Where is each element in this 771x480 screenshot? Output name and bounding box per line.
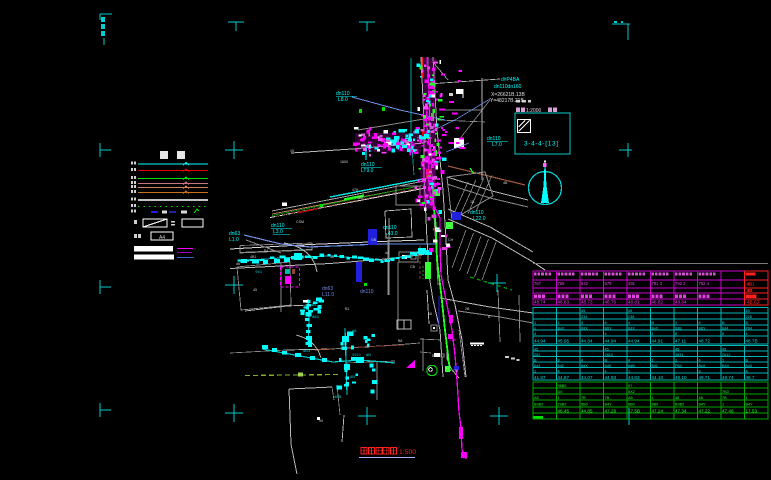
svg-text:45: 45 [253,288,257,292]
svg-text:CB: CB [410,265,416,269]
svg-text:3-4-4-[13]: 3-4-4-[13] [524,141,559,148]
svg-text:1: 1 [675,359,677,363]
svg-text:49: 49 [319,419,323,423]
svg-text:48B: 48B [334,394,341,399]
svg-text:478: 478 [449,337,456,342]
svg-text:Y=48217B.21B: Y=48217B.21B [490,98,524,104]
svg-text:d8: d8 [236,262,240,266]
svg-text:CH: CH [448,238,454,242]
svg-text:4B1: 4B1 [250,255,256,259]
svg-text:491: 491 [628,281,636,286]
svg-text:44.93: 44.93 [605,375,617,380]
svg-text:P64: P64 [746,327,753,331]
svg-text:48.62: 48.62 [747,300,760,306]
svg-text:L8.0: L8.0 [338,97,348,103]
svg-text:226: 226 [746,315,752,319]
svg-text:48.76: 48.76 [605,300,617,305]
svg-text:4: 4 [558,370,560,374]
svg-text:x: x [534,327,536,331]
svg-text:4B: 4B [747,288,753,293]
svg-text:B8: B8 [398,339,402,343]
svg-text:48.72: 48.72 [699,339,711,344]
svg-text:1: 1 [652,332,654,336]
svg-text:TE: TE [438,229,443,233]
svg-text:45: 45 [722,348,726,352]
svg-text:9?: 9? [628,384,632,388]
svg-text:4: 4 [746,370,748,374]
svg-text:d#P4BA: d#P4BA [501,77,520,83]
svg-text:48.82: 48.82 [652,300,664,305]
svg-text:L43.0: L43.0 [385,231,398,237]
svg-text:L11.0: L11.0 [322,292,334,298]
svg-text:7B: 7B [581,396,586,400]
svg-text:48.83: 48.83 [558,300,570,305]
svg-text:18: 18 [428,312,432,316]
svg-text:48.74: 48.74 [534,300,546,305]
svg-text:48.10: 48.10 [675,375,687,380]
svg-text:252: 252 [534,353,540,357]
svg-text:1: 1 [675,321,677,325]
svg-text:4: 4 [746,332,748,336]
svg-text:4B: 4B [350,374,355,379]
svg-text:765: 765 [558,281,566,286]
svg-text:A5: A5 [628,396,633,400]
svg-text:d4: d4 [385,251,389,255]
svg-text:4: 4 [534,332,536,336]
svg-text:A5: A5 [534,396,539,400]
svg-text:842: 842 [581,281,589,286]
svg-text:478: 478 [452,369,458,373]
svg-text:B1: B1 [345,307,349,311]
svg-text:D0: D0 [558,390,563,394]
svg-text:d6: d6 [352,328,357,333]
svg-text:4: 4 [581,321,583,325]
svg-text:45: 45 [534,348,538,352]
svg-text:792 2: 792 2 [675,281,686,286]
svg-text:LT9.0: LT9.0 [361,168,374,174]
svg-text:6dX: 6dX [628,327,635,331]
svg-text:2810: 2810 [605,353,613,357]
svg-text:B9B2: B9B2 [675,403,684,407]
svg-text:44.85: 44.85 [581,409,593,414]
svg-text:767: 767 [534,281,542,286]
svg-text:762 4: 762 4 [699,281,710,286]
svg-text:6d4: 6d4 [722,327,728,331]
svg-text:Φ110: Φ110 [352,353,361,357]
svg-text:17.5B: 17.5B [628,409,640,414]
svg-text:d63: d63 [312,314,319,319]
svg-text:A4: A4 [159,235,165,241]
svg-text:38: 38 [330,255,334,259]
svg-text:B4Y: B4Y [699,403,707,407]
svg-text:4: 4 [699,359,701,363]
svg-text:4B: 4B [503,181,508,185]
svg-text:44.87: 44.87 [558,375,570,380]
svg-text:47.22: 47.22 [699,409,711,414]
svg-text:1B: 1B [470,200,475,204]
svg-text:dB: dB [366,352,371,357]
svg-text:P64: P64 [675,364,682,368]
svg-text:B6Y: B6Y [605,327,613,331]
svg-text:L7.0: L7.0 [492,142,502,148]
svg-text:488: 488 [357,196,363,200]
svg-text:44.10: 44.10 [652,375,664,380]
svg-text:B4Y: B4Y [746,403,754,407]
svg-text:47.11: 47.11 [675,339,687,344]
svg-text:8: 8 [699,370,701,374]
svg-text:B4Y: B4Y [605,403,613,407]
svg-text:45: 45 [581,309,585,313]
svg-text:4: 4 [628,321,630,325]
svg-text:1:500: 1:500 [399,449,416,456]
svg-text:1: 1 [558,396,560,400]
svg-text:45: 45 [675,348,679,352]
svg-text:46.45: 46.45 [558,409,570,414]
svg-text:17.53: 17.53 [746,409,758,414]
svg-text:6dB: 6dB [675,327,682,331]
svg-text:Φ63: Φ63 [255,270,262,274]
svg-text:6d2: 6d2 [558,364,564,368]
svg-text:238: 238 [628,315,634,319]
svg-text:6d2: 6d2 [652,364,658,368]
svg-text:7B: 7B [605,396,610,400]
svg-text:dn110: dn110 [360,289,374,295]
svg-text:3831: 3831 [675,353,683,357]
svg-text:44.94: 44.94 [605,339,617,344]
svg-text:1: 1 [746,396,748,400]
svg-text:dn110dn160: dn110dn160 [494,84,522,90]
svg-text:45: 45 [628,309,632,313]
svg-text:L1.0: L1.0 [229,237,239,243]
svg-text:1: 1 [534,321,536,325]
svg-text:4: 4 [605,332,607,336]
svg-text:791 3: 791 3 [652,281,663,286]
svg-text:4B: 4B [365,345,370,349]
svg-text:2L1: 2L1 [747,282,755,287]
svg-text:48.71: 48.71 [699,375,711,380]
svg-text:8: 8 [722,332,724,336]
svg-text:BvX: BvX [699,364,706,368]
svg-text:Φ: Φ [300,248,303,252]
svg-text:41.87: 41.87 [534,375,546,380]
svg-text:1600: 1600 [340,160,348,164]
svg-text:8B0: 8B0 [628,403,635,407]
svg-text:45.95: 45.95 [558,339,570,344]
svg-text:1: 1 [534,370,536,374]
svg-text:8: 8 [675,332,677,336]
svg-text:48.84: 48.84 [675,300,687,305]
svg-text:8B0: 8B0 [581,403,588,407]
svg-text:47.24: 47.24 [652,409,664,414]
svg-text:1: 1 [652,359,654,363]
svg-text:44.83: 44.83 [628,375,640,380]
svg-text:4: 4 [581,359,583,363]
svg-text:BvX: BvX [558,327,565,331]
svg-text:8: 8 [605,321,607,325]
svg-text:4: 4 [605,370,607,374]
svg-text:6dX: 6dX [746,364,753,368]
svg-text:47.34: 47.34 [675,409,687,414]
svg-text:15: 15 [290,149,294,153]
svg-text:679: 679 [605,281,613,286]
svg-text:44.94: 44.94 [628,339,640,344]
svg-text:48.73: 48.73 [581,300,593,305]
svg-text:1: 1 [722,403,724,407]
svg-text:8: 8 [699,321,701,325]
svg-text:dB3: dB3 [303,348,311,353]
svg-text:44.94: 44.94 [534,339,546,344]
svg-text:1: 1 [628,370,630,374]
svg-text:47.28: 47.28 [605,409,617,414]
svg-text:44.84: 44.84 [581,339,593,344]
svg-text:48.81: 48.81 [628,300,640,305]
svg-text:GB: GB [371,238,377,242]
svg-text:L22.0: L22.0 [473,216,486,222]
svg-text:48: 48 [699,396,703,400]
svg-text:45: 45 [746,309,750,313]
svg-text:8B0: 8B0 [652,403,659,407]
svg-text:44.07: 44.07 [581,375,593,380]
svg-text:6dB: 6dB [628,364,635,368]
svg-text:45: 45 [605,348,609,352]
svg-text:6dX: 6dX [605,364,612,368]
svg-text:2B: 2B [465,307,470,311]
svg-text:48.7: 48.7 [746,375,755,380]
svg-text:48.74: 48.74 [722,375,734,380]
svg-text:B9B2: B9B2 [534,403,543,407]
svg-text:6dX: 6dX [581,327,588,331]
svg-text:7B: 7B [722,396,727,400]
svg-text:CSM: CSM [296,220,304,224]
svg-text:2612: 2612 [722,353,730,357]
svg-text:6d4: 6d4 [534,364,540,368]
svg-text:1: 1 [652,396,654,400]
svg-text:48: 48 [675,396,679,400]
svg-text:BT: BT [432,354,437,358]
svg-text:BvX: BvX [652,327,659,331]
svg-text:5X2: 5X2 [628,390,635,394]
svg-text:48.7B: 48.7B [746,339,758,344]
svg-text:44.91: 44.91 [652,339,664,344]
svg-text:7B3: 7B3 [722,390,729,394]
svg-text:B4: B4 [264,249,268,253]
svg-text:6dX: 6dX [581,364,588,368]
svg-text:234: 234 [581,315,587,319]
svg-text:47.48: 47.48 [722,409,734,414]
svg-text:B6Y: B6Y [699,327,707,331]
svg-text:8: 8 [558,359,560,363]
svg-text:478: 478 [352,188,358,192]
svg-text:B4X: B4X [722,364,730,368]
svg-text:1: 1 [558,321,560,325]
svg-text:4: 4 [628,359,630,363]
svg-text:29B2: 29B2 [558,403,567,407]
svg-text:1: 1 [722,359,724,363]
svg-text:98B9: 98B9 [558,384,567,388]
